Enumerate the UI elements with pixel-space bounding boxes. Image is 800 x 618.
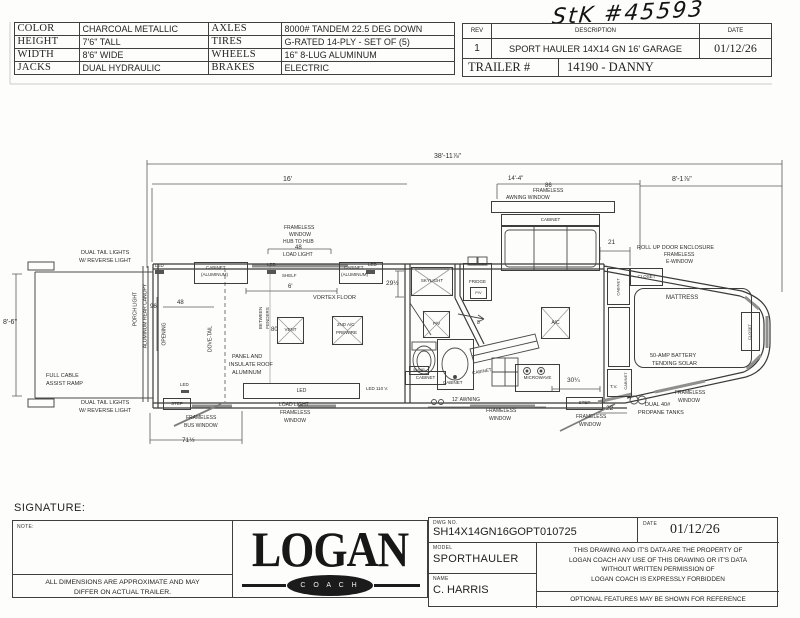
spec-cell-3-1: DUAL HYDRAULIC	[79, 61, 209, 75]
spec-cell-2-3: 16" 8-LUG ALUMINUM	[281, 48, 455, 62]
plan-box-gooseneck-cabinet: CABINET	[501, 214, 600, 226]
plan-label-led-bottom-left: LED	[180, 383, 189, 388]
plan-label-frameless-window-step-2: WINDOW	[579, 423, 601, 428]
plan-label-dim-48-opening: 48	[177, 300, 184, 306]
plan-label-tail-lights-top-1: DUAL TAIL LIGHTS	[81, 251, 129, 257]
drawing-info-block: DWG NO. SH14X14GN16GOPT010725 DATE 01/12…	[428, 517, 778, 607]
plan-label-tail-lights-bottom-2: W/ REVERSE LIGHT	[79, 409, 131, 415]
plan-label-dim-22: 22	[606, 406, 613, 413]
plan-label-propane-line1: DUAL 40#	[645, 403, 670, 409]
spec-cell-3-2: BRAKES	[208, 61, 282, 75]
plan-box-fridge-pv: P/V	[470, 287, 487, 299]
plan-label-mattress-label: MATTRESS	[666, 295, 698, 301]
spec-cell-3-0: JACKS	[14, 61, 80, 75]
plan-label-load-light-win-2: FRAMELESS	[280, 411, 310, 416]
plan-box-label-skylight: SKYLIGHT	[421, 279, 443, 284]
plan-box-label-toilet-cabinet: CABINET	[416, 376, 436, 381]
description-header-cell: DESCRIPTION	[491, 23, 700, 39]
spec-cell-0-0: COLOR	[14, 22, 80, 36]
plan-box-label-ac-unit: A/C	[551, 321, 559, 326]
rev-value-cell: 1	[462, 38, 492, 59]
logo-left-rule	[242, 584, 286, 587]
plan-label-dim-48-hub: 48	[295, 245, 302, 251]
name-label: NAME	[433, 576, 536, 582]
plan-box-skylight: SKYLIGHT	[411, 267, 453, 296]
plan-box-label-closet-right: CLOSET	[748, 323, 752, 339]
plan-label-aluminum-rear-canopy: ALUMINUM REAR CANOPY	[144, 284, 149, 348]
plan-box-label-fridge-pv: P/V	[475, 291, 481, 295]
dwg-no-cell: DWG NO. SH14X14GN16GOPT010725	[429, 518, 638, 543]
model-label: MODEL	[433, 545, 536, 551]
date-value: 01/12/26	[670, 522, 720, 538]
plan-box-bath-pv: P/V	[423, 311, 450, 338]
plan-label-dim-8-6: 8'-6"	[3, 319, 17, 326]
plan-label-awning-12ft: 12' AWNING	[452, 398, 480, 403]
plan-label-dim-80: 80	[271, 327, 278, 333]
plan-label-awning-window: AWNING WINDOW	[506, 196, 550, 201]
plan-label-prewire-line2: PREWIRE	[336, 331, 357, 336]
model-cell: MODEL SPORTHAULER	[429, 543, 537, 574]
name-value: C. HARRIS	[433, 584, 536, 596]
plan-label-led-top-mid: LED	[267, 263, 276, 268]
plan-label-opening: OPENING	[163, 322, 168, 345]
plan-label-roof-line3: ALUMINUM	[232, 371, 261, 377]
model-value: SPORTHAULER	[433, 553, 536, 565]
plan-label-tv-cabinet-label: CABINET	[624, 372, 628, 389]
rev-date-cell: 01/12/26	[699, 38, 772, 59]
plan-label-dove-tail: DOVE-TAIL	[209, 326, 214, 352]
plan-label-dim-29-half: 29½	[386, 281, 399, 288]
description-value-cell: SPORT HAULER 14X14 GN 16' GARAGE	[491, 38, 700, 59]
plan-box-label-led-bar: LED	[297, 389, 307, 394]
note-box: NOTE: ALL DIMENSIONS ARE APPROXIMATE AND…	[12, 520, 233, 598]
plan-label-cabinet-left-line1: CABINET	[206, 266, 226, 271]
spec-row-3: JACKSDUAL HYDRAULICBRAKESELECTRIC	[14, 61, 454, 74]
plan-label-tail-lights-top-2: W/ REVERSE LIGHT	[79, 259, 131, 265]
dwg-no-value: SH14X14GN16GOPT010725	[433, 526, 637, 538]
spec-cell-2-2: WHEELS	[208, 48, 282, 62]
plan-label-rollup-line2: FRAMELESS	[664, 253, 694, 258]
plan-label-rollup-line1: ROLL UP DOOR ENCLOSURE	[637, 246, 714, 252]
plan-label-dim-14-4: 14'-4"	[508, 176, 523, 182]
legal-cell: THIS DRAWING AND IT'S DATA ARE THE PROPE…	[537, 543, 779, 592]
plan-label-led-top-left: LED	[155, 264, 164, 269]
logo-right-rule	[374, 584, 420, 587]
note-divider	[13, 574, 232, 575]
spec-cell-1-0: HEIGHT	[14, 35, 80, 49]
plan-box-step-right: STEP	[566, 397, 603, 410]
plan-box-label-vent: VENT	[284, 328, 296, 333]
date-label: DATE	[643, 521, 657, 527]
spec-row-0: COLORCHARCOAL METALLICAXLES8000# TANDEM …	[14, 22, 454, 35]
plan-label-dim-6ft: 6'	[288, 284, 292, 290]
plan-box-bedroom-cabinet: CABINET	[607, 268, 630, 305]
plan-box-bedroom-bench	[608, 307, 630, 367]
spec-cell-1-3: G-RATED 14-PLY - SET OF (5)	[281, 35, 455, 49]
plan-label-tail-lights-bottom-1: DUAL TAIL LIGHTS	[81, 401, 129, 407]
spec-cell-1-1: 7'6" TALL	[79, 35, 209, 49]
plan-label-hub-load-light: LOAD LIGHT	[283, 253, 313, 258]
plan-label-ramp-line2: ASSIST RAMP	[46, 382, 83, 388]
plan-label-dim-21: 21	[608, 240, 615, 247]
date-header-cell: DATE	[699, 23, 772, 39]
plan-label-porch-light: PORCH LIGHT	[134, 292, 139, 326]
plan-label-frameless-window-mid-2: WINDOW	[489, 417, 511, 422]
plan-box-label-microwave: MICROWAVE	[524, 376, 552, 381]
plan-label-door-8: 8	[477, 321, 480, 326]
plan-label-dim-overall-length: 38'-11⅞"	[434, 153, 461, 160]
plan-label-frameless-window-step-1: FRAMELESS	[576, 415, 606, 420]
plan-box-tv-cabinet	[607, 369, 632, 397]
plan-label-roof-line1: PANEL AND	[232, 355, 262, 361]
plan-label-counter-cabinet-label: CABINET	[472, 368, 492, 376]
plan-box-label-fridge: FRIDGE	[469, 280, 486, 285]
plan-label-hub-window-1: FRAMELESS	[284, 226, 314, 231]
spec-row-1: HEIGHT7'6" TALLTIRESG-RATED 14-PLY - SET…	[14, 35, 454, 48]
plan-label-between: BETWEEN	[259, 307, 264, 329]
plan-box-vent: VENT	[277, 317, 304, 344]
plan-box-microwave: MICROWAVE	[515, 364, 560, 392]
plan-label-bus-window-1: FRAMELESS	[186, 416, 216, 421]
spec-cell-2-1: 8'6" WIDE	[79, 48, 209, 62]
plan-label-shelf: SHELF	[282, 274, 297, 279]
plan-box-gooseneck-window	[501, 226, 600, 271]
spec-cell-0-3: 8000# TANDEM 22.5 DEG DOWN	[281, 22, 455, 36]
logo-box: LOGAN C O A C H	[232, 520, 428, 598]
signature-label: SIGNATURE:	[14, 502, 85, 514]
spec-cell-1-2: TIRES	[208, 35, 282, 49]
plan-label-dim-8-1: 8'-1⅞"	[672, 176, 692, 183]
plan-label-frameless-window-bed-1: FRAMELESS	[675, 391, 705, 396]
plan-box-label-bedroom-cabinet: CABINET	[617, 278, 621, 295]
date-cell: DATE 01/12/26	[638, 518, 779, 543]
plan-label-vortex-floor: VORTEX FLOOR	[313, 296, 356, 302]
plan-box-gooseneck-awning-bar	[491, 201, 615, 213]
plan-box-closet-right: CLOSET	[741, 312, 760, 351]
plan-box-closet-top: CLOSET	[630, 268, 663, 286]
plan-label-load-light-win-1: LOAD LIGHT	[279, 403, 309, 408]
plan-label-dim-96: 96	[150, 304, 157, 310]
rev-header-cell: REV	[462, 23, 492, 39]
spec-table: COLORCHARCOAL METALLICAXLES8000# TANDEM …	[14, 22, 454, 74]
plan-label-frameless-window-bed-2: WINDOW	[678, 399, 700, 404]
plan-label-propane-line2: PROPANE TANKS	[638, 411, 684, 417]
plan-label-dim-garage-16ft: 16'	[283, 176, 292, 183]
plan-label-sink-cabinet-label: CABINET	[443, 381, 463, 386]
plan-box-label-bath-pv: P/V	[433, 322, 440, 327]
trailer-number-value-cell: 14190 - DANNY	[558, 58, 772, 77]
plan-label-cabinet-left-line2: (ALUMINUM)	[201, 273, 228, 278]
plan-box-ac-unit: A/C	[541, 307, 570, 339]
plan-label-awning-frameless: FRAMELESS	[533, 189, 563, 194]
spec-cell-0-2: AXLES	[208, 22, 282, 36]
plan-box-label-step-right: STEP	[579, 401, 591, 406]
plan-label-bus-window-2: BUS WINDOW	[184, 424, 218, 429]
spec-cell-2-0: WIDTH	[14, 48, 80, 62]
spec-row-2: WIDTH8'6" WIDEWHEELS16" 8-LUG ALUMINUM	[14, 48, 454, 61]
plan-label-roof-line2: INSULATE ROOF	[229, 363, 273, 369]
plan-label-solar-line1: 50-AMP BATTERY	[650, 354, 696, 360]
plan-label-dim-71-half: 71½	[182, 438, 195, 445]
name-cell: NAME C. HARRIS	[429, 574, 537, 608]
coach-logo-text: C O A C H	[300, 582, 359, 589]
logan-logo-text: LOGAN	[233, 521, 427, 578]
optional-cell: OPTIONAL FEATURES MAY BE SHOWN FOR REFER…	[537, 592, 779, 608]
note-label: NOTE:	[17, 524, 34, 530]
plan-box-led-bar: LED	[243, 383, 360, 399]
plan-box-step-left: STEP	[163, 398, 191, 410]
plan-box-label-step-left: STEP	[171, 402, 183, 407]
plan-label-rollup-line3: E-WINDOW	[666, 260, 693, 265]
plan-box-label-gooseneck-cabinet: CABINET	[541, 218, 561, 223]
coach-ellipse: C O A C H	[287, 575, 373, 596]
plan-label-ramp-line1: FULL CABLE	[46, 374, 79, 380]
plan-label-load-light-win-3: WINDOW	[284, 419, 306, 424]
plan-label-prewire-line1: 2ND A/C	[337, 323, 355, 328]
plan-label-hub-window-2: WINDOW	[289, 233, 311, 238]
trailer-number-label-cell: TRAILER #	[462, 58, 559, 77]
plan-label-dim-30-quarter: 30¼	[567, 378, 580, 385]
dimensions-disclaimer: ALL DIMENSIONS ARE APPROXIMATE AND MAY D…	[13, 578, 232, 598]
plan-label-led-110v: LED 110 V.	[366, 387, 388, 392]
scanned-trailer-drawing-sheet: { "handwriting": { "stock_number": "StK …	[0, 0, 800, 618]
plan-box-label-closet-top: CLOSET	[637, 275, 655, 280]
plan-label-fenders: FENDERS	[266, 307, 271, 329]
plan-label-cabinet-right-line1: CABINET	[344, 266, 364, 271]
plan-label-cabinet-right-line2: (ALUMINUM)	[341, 273, 368, 278]
plan-label-tv-label: T.V.	[610, 385, 617, 390]
plan-label-solar-line2: TENDING SOLAR	[652, 362, 697, 368]
plan-label-led-top-right: LED	[368, 263, 377, 268]
spec-cell-3-3: ELECTRIC	[281, 61, 455, 75]
spec-cell-0-1: CHARCOAL METALLIC	[79, 22, 209, 36]
plan-label-frameless-window-mid-1: FRAMELESS	[486, 409, 516, 414]
